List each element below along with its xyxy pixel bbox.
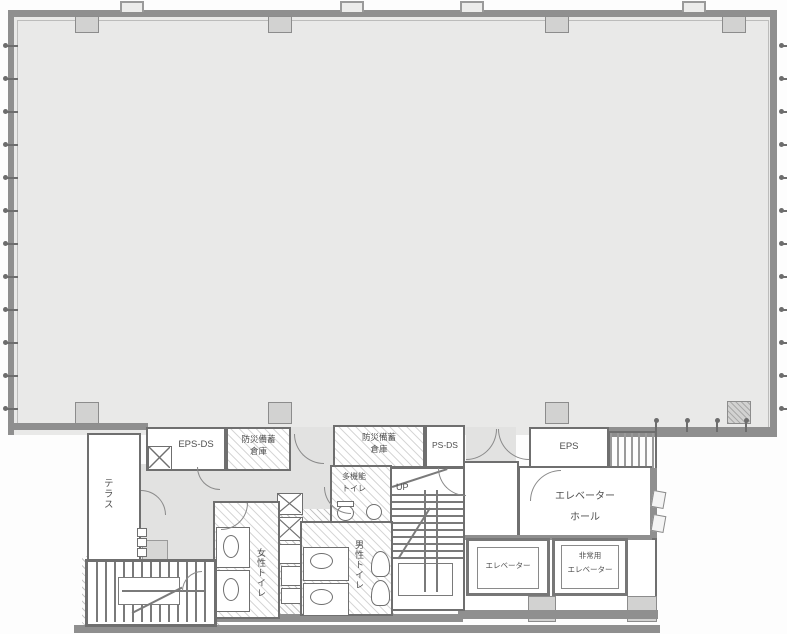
facade-clip-icon [460,1,484,12]
mullion-tick-icon [783,408,787,410]
mullion-tick-icon [7,78,18,80]
facade-clip-icon [120,1,144,12]
mullion-tick-icon [7,144,18,146]
mullion-tick-icon [783,342,787,344]
mullion-tick-icon [783,375,787,377]
mullion-tick-icon [783,276,787,278]
label-eps: EPS [539,440,599,454]
stair-tread [114,562,116,622]
room-terrace [87,433,141,567]
mullion-tick-icon [783,144,787,146]
stair-tread [105,562,107,622]
toilet-icon [223,578,239,601]
mullion-tick-icon [655,422,657,432]
mullion-tick-icon [783,111,787,113]
label-line: 多機能 [332,471,376,483]
toilet-icon [223,535,239,558]
label-womens-toilet: 女性トイレ [254,548,267,598]
label-mens-toilet: 男性トイレ [352,540,365,590]
mullion-tick-icon [783,78,787,80]
column [268,402,292,424]
mullion-tick-icon [7,375,18,377]
mullion-tick-icon [7,177,18,179]
stair-tread [96,562,98,622]
label-emergency-elevator: 非常用 エレベーター [554,549,626,576]
stair-tread [389,501,463,503]
column [545,402,569,424]
label-line: エレベーター [554,563,626,577]
urinal-icon [371,551,390,577]
stair-lobby [463,461,519,537]
toilet-icon [310,589,333,605]
mullion-tick-icon [783,210,787,212]
terrace-step [137,528,147,537]
mullion-tick-icon [7,408,18,410]
mullion-tick-icon [783,309,787,311]
label-terrace: テラス [100,478,114,510]
label-disaster-storage-1: 防災備蓄 倉庫 [228,433,289,458]
facade-clip-icon [682,1,706,12]
facade-clip-icon [340,1,364,12]
stair-tread [186,562,188,622]
stair-tread [389,550,463,552]
stair-landing [398,563,453,596]
label-line: 非常用 [554,549,626,563]
label-up: UP [396,481,409,494]
column [75,16,99,33]
stair-treads [389,494,463,560]
mullion-tick-icon [7,45,18,47]
mullion-tick-icon [783,177,787,179]
mullion-tick-icon [7,276,18,278]
stair-tread [389,536,463,538]
mullion-tick-icon [716,422,718,432]
stair-tread [389,543,463,545]
urinal-icon [371,580,390,606]
mullion-tick-icon [745,422,747,432]
door-flap-icon [651,490,667,509]
label-line: 倉庫 [336,443,422,455]
service-shaft [277,493,303,515]
label-line: 防災備蓄 [228,433,289,445]
sink-icon [366,504,382,520]
core-south-wall [458,610,658,619]
label-line: 倉庫 [228,445,289,457]
mullion-tick-icon [7,342,18,344]
label-ps-ds: PS-DS [424,439,466,451]
office-south-wall-left [8,423,148,430]
mullion-tick-icon [7,243,18,245]
mullion-tick-icon [686,422,688,432]
label-line: 防災備蓄 [336,431,422,443]
curtain-wall-inner-line [17,20,769,430]
door-flap-icon [651,514,667,533]
stair-tread [389,508,463,510]
mullion-tick-icon [7,309,18,311]
mullion-tick-icon [783,45,787,47]
floor-plan-canvas: テラス EPS-DS 防災備蓄 倉庫 防災備蓄 倉庫 PS-DS EPS エレベ… [0,0,787,634]
stair-tread [389,529,463,531]
label-eps-ds: EPS-DS [168,438,224,452]
stair-tread [389,522,463,524]
label-elevator: エレベーター [470,561,546,572]
mullion-tick-icon [783,243,787,245]
stair-tread [389,494,463,496]
terrace-step [137,548,147,557]
mullion-tick-icon [7,210,18,212]
label-disaster-storage-2: 防災備蓄 倉庫 [336,431,422,456]
toilet-icon [310,553,333,569]
terrace-step [137,538,147,547]
stair-tread [204,562,206,622]
stair-tread [389,557,463,559]
column [75,402,99,424]
column [268,16,292,33]
column [545,16,569,33]
mullion-tick-icon [7,111,18,113]
column [722,16,746,33]
label-line: ホール [521,507,649,528]
